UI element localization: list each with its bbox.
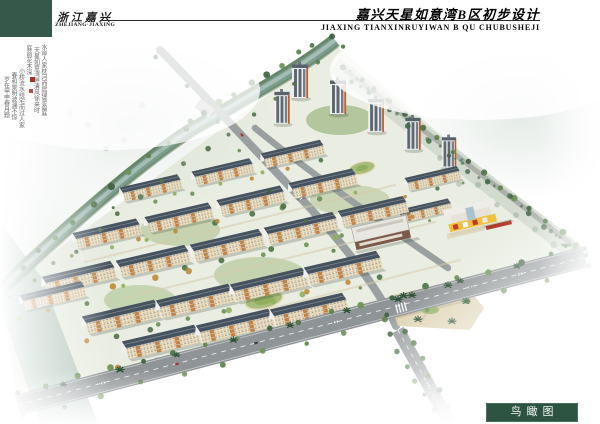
aerial-rendering (0, 0, 600, 424)
presentation-sheet: 浙江嘉兴 ZHEJIANG·JIAXING 嘉兴天星如意湾B区初步设计 JIAX… (0, 0, 600, 424)
red-seal-icon (29, 89, 33, 93)
location-en: ZHEJIANG·JIAXING (55, 22, 115, 28)
page-title-pinyin: JIAXING TIANXINRUYIWAN B QU CHUBUSHEJI (220, 23, 540, 32)
red-seal-icon (30, 77, 35, 82)
edge-mist (0, 0, 600, 424)
calligraphy-column: 天星如意湾畔清风徐来时 (32, 47, 39, 194)
calligraphy-annotation: 水岸人家枕河而居绿意盈庭 天星如意湾畔清风徐来时 庭前花木深 小桥流水绕宅而过人… (2, 44, 46, 194)
view-label: 鸟瞰图 (486, 403, 578, 422)
calligraphy-column: 庭前花木深 (25, 45, 32, 194)
calligraphy-column: 水岸人家枕河而居绿意盈庭 (40, 44, 47, 194)
calligraphy-column: 春和景明波澜不惊 (10, 72, 17, 194)
calligraphy-column: 小桥流水绕宅而过人家 (17, 68, 24, 194)
page-title: 嘉兴天星如意湾B区初步设计 (240, 4, 540, 23)
corner-logo-block (0, 0, 52, 37)
calligraphy-column: 岁在甲申春月题 (2, 76, 9, 194)
